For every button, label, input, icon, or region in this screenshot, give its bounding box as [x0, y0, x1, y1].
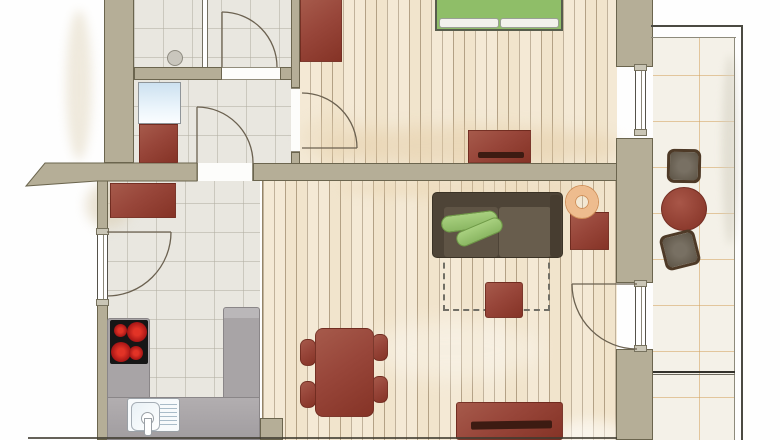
balcony-chair-1: [667, 149, 702, 184]
sideboard-handle-slot: [478, 152, 524, 158]
tv-lowboard: [456, 402, 563, 440]
dining-chair-left-2: [300, 381, 316, 408]
kitchen-sink: [127, 398, 180, 432]
side-table: [570, 212, 609, 250]
sofa-seat-right: [499, 207, 551, 257]
pouf: [485, 282, 523, 318]
hall-cabinet: [139, 124, 178, 163]
sofa-armrest-right: [550, 195, 561, 257]
bedroom-sideboard: [468, 130, 531, 163]
cooktop: [110, 320, 148, 364]
washing-machine: [138, 82, 181, 124]
sink-faucet-stem: [144, 418, 152, 436]
burner-small-1: [114, 324, 127, 337]
kitchen-tall-cupboard: [110, 183, 176, 218]
dining-chair-right-2: [372, 376, 388, 403]
plan-bottom-cut-line: [28, 437, 617, 439]
balcony-round-table: [661, 187, 707, 231]
bedroom-wardrobe: [300, 0, 342, 62]
dining-table: [315, 328, 374, 417]
sink-drainboard: [160, 404, 177, 427]
double-bed: [435, 0, 563, 31]
lowboard-handle-slot: [471, 420, 552, 429]
floor-plan-canvas: [0, 0, 780, 440]
burner-large-1: [127, 322, 147, 342]
burner-small-2: [129, 346, 143, 360]
burner-large-2: [111, 342, 131, 362]
dining-chair-left-1: [300, 339, 316, 366]
floor-lamp-ring: [566, 186, 598, 218]
bed-pillow-right: [500, 18, 559, 28]
bed-pillow-left: [439, 18, 499, 28]
dining-chair-right-1: [372, 334, 388, 361]
